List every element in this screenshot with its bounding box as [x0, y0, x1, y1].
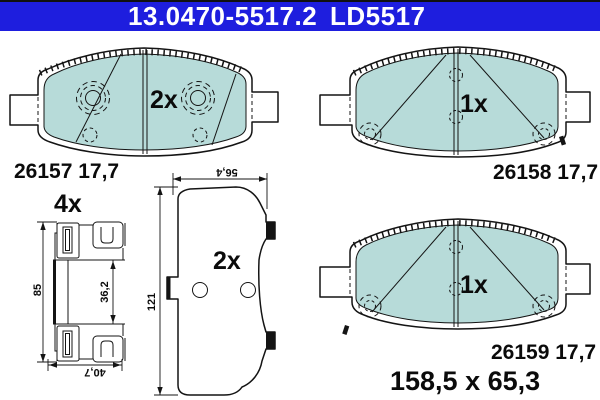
quantity-pad-front: 2x: [150, 86, 178, 115]
dim-label-40-7: 40,7: [84, 366, 105, 378]
backplate-profile-drawing: [148, 165, 288, 400]
clip-bottom-half: [55, 324, 125, 362]
brake-pad-front-view-drawing: [6, 42, 282, 164]
quantity-pad-top-right: 1x: [460, 90, 488, 119]
guide-tab-top: [266, 222, 275, 239]
reference-code: LD5517: [330, 2, 426, 31]
dim-label-36-2: 36,2: [99, 281, 111, 302]
guide-tab-bottom: [266, 332, 275, 349]
part-label-26157: 26157 17,7: [14, 160, 119, 184]
pad-size-dimension: 158,5 x 65,3: [390, 366, 540, 397]
technical-drawing-page: 13.0470-5517.2 LD5517: [0, 0, 600, 400]
dim-label-85: 85: [32, 284, 44, 296]
brake-pad-back-view-drawing: [318, 40, 594, 165]
dim-label-121: 121: [146, 293, 158, 311]
part-label-26159: 26159 17,7: [491, 341, 596, 365]
article-number: 13.0470-5517.2: [128, 2, 317, 31]
quantity-clip: 4x: [54, 190, 82, 219]
wear-indicator: [342, 325, 349, 335]
clip-channel: [53, 260, 125, 324]
quantity-pad-bottom-right: 1x: [460, 271, 488, 300]
brake-pad-back-view-drawing-2: [318, 212, 594, 337]
quantity-backplate: 2x: [213, 247, 241, 276]
header-bar: 13.0470-5517.2 LD5517: [0, 2, 600, 31]
part-label-26158: 26158 17,7: [493, 161, 598, 185]
dim-label-56-4: 56,4: [216, 166, 237, 178]
clip-top-half: [55, 222, 125, 260]
side-tab-edge: [167, 277, 171, 299]
